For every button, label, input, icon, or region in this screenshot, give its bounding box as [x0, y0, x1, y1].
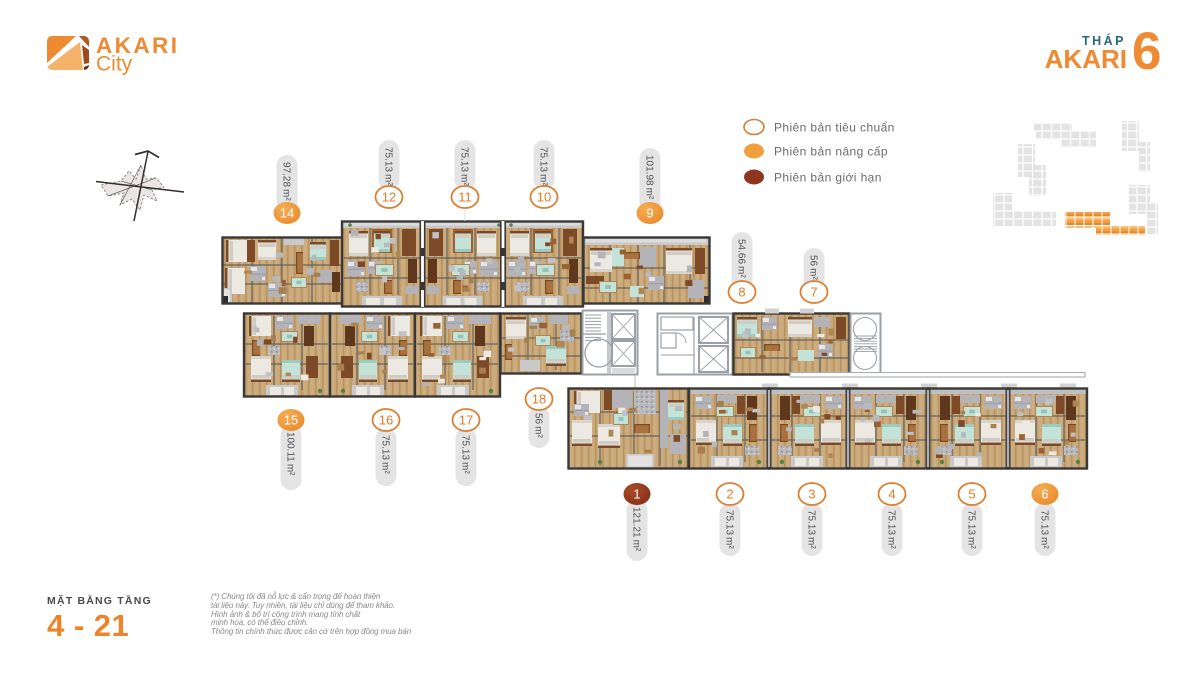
svg-text:97.28 m²: 97.28 m² — [280, 162, 291, 201]
svg-text:100.11 m²: 100.11 m² — [284, 432, 295, 476]
svg-text:54.66 m²: 54.66 m² — [735, 239, 746, 278]
svg-text:75.13 m²: 75.13 m² — [459, 435, 470, 474]
svg-text:75.13 m²: 75.13 m² — [723, 510, 734, 549]
svg-text:101.98 m²: 101.98 m² — [643, 155, 654, 200]
svg-text:7: 7 — [810, 285, 817, 300]
svg-text:5: 5 — [968, 487, 975, 502]
svg-text:75.13 m²: 75.13 m² — [379, 435, 390, 474]
svg-text:75.13 m²: 75.13 m² — [885, 510, 896, 549]
svg-text:12: 12 — [382, 190, 396, 205]
svg-text:14: 14 — [280, 206, 294, 221]
svg-text:8: 8 — [738, 285, 745, 300]
svg-text:15: 15 — [284, 413, 298, 428]
svg-text:6: 6 — [1041, 487, 1048, 502]
svg-text:56 m²: 56 m² — [807, 255, 818, 280]
svg-text:10: 10 — [537, 190, 551, 205]
svg-text:9: 9 — [646, 206, 653, 221]
svg-text:1: 1 — [633, 487, 640, 502]
svg-text:56 m²: 56 m² — [532, 413, 543, 438]
svg-text:75.13 m²: 75.13 m² — [805, 510, 816, 549]
svg-text:3: 3 — [808, 487, 815, 502]
svg-text:11: 11 — [458, 190, 472, 205]
svg-text:121.21 m²: 121.21 m² — [630, 507, 641, 552]
svg-text:17: 17 — [459, 413, 473, 428]
svg-text:2: 2 — [726, 487, 733, 502]
svg-text:75.13 m²: 75.13 m² — [965, 510, 976, 549]
svg-text:75.13 m²: 75.13 m² — [1038, 510, 1049, 549]
svg-text:75.13 m²: 75.13 m² — [458, 147, 469, 186]
svg-text:75.13 m²: 75.13 m² — [537, 147, 548, 186]
svg-text:16: 16 — [379, 413, 393, 428]
svg-text:18: 18 — [532, 392, 546, 407]
svg-text:75.13 m²: 75.13 m² — [382, 147, 393, 186]
svg-text:4: 4 — [888, 487, 895, 502]
